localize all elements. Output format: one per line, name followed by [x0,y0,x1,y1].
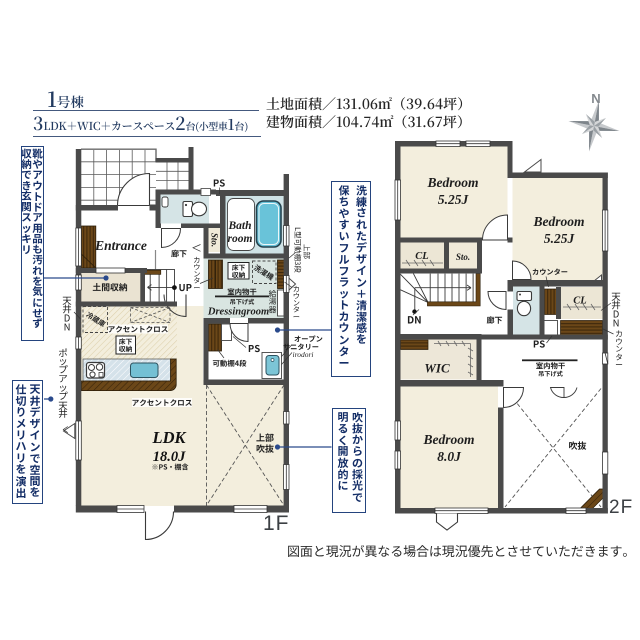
svg-text:Bedroom: Bedroom [532,214,584,229]
svg-text:Entrance: Entrance [94,238,147,253]
svg-text:アクセントクロス: アクセントクロス [108,324,169,335]
svg-text:Bedroom: Bedroom [426,175,478,190]
svg-text:CL: CL [415,251,428,262]
svg-text:PS: PS [213,176,225,190]
svg-text:UP: UP [179,280,192,294]
svg-text:アクセントクロス: アクセントクロス [132,398,193,409]
svg-text:Bath: Bath [227,220,251,232]
svg-text:収納: 収納 [232,270,246,280]
svg-text:Bedroom: Bedroom [422,432,474,447]
svg-text:8.0J: 8.0J [437,449,462,464]
svg-text:WIC: WIC [424,361,450,376]
svg-text:5.25J: 5.25J [544,231,576,246]
svg-text:吹抜: 吹抜 [568,439,586,452]
svg-text:LDK: LDK [152,428,187,447]
svg-text:土間収納: 土間収納 [92,281,127,294]
svg-text:吊下げ式: 吊下げ式 [538,369,564,378]
svg-text:N: N [591,91,600,106]
svg-text:可動棚4段: 可動棚4段 [213,358,248,369]
svg-text:吹抜: 吹抜 [256,442,274,455]
svg-text:Dressingroom: Dressingroom [207,307,269,318]
svg-text:irodori: irodori [293,350,314,359]
svg-text:※PS・棚含: ※PS・棚含 [151,463,188,473]
svg-text:廊下: 廊下 [487,315,503,326]
svg-text:廊下: 廊下 [171,249,187,260]
svg-text:room: room [228,233,253,245]
svg-text:収納: 収納 [119,344,133,354]
svg-text:CL: CL [573,296,586,307]
svg-text:吊下げ式: 吊下げ式 [230,297,256,306]
svg-text:DN: DN [407,312,422,327]
svg-text:5.25J: 5.25J [438,192,470,207]
svg-text:Sto.: Sto. [210,233,220,247]
svg-text:室内物干: 室内物干 [227,287,257,298]
svg-text:PS: PS [248,341,260,355]
svg-text:PS: PS [533,337,545,351]
svg-text:Sto.: Sto. [456,252,470,262]
svg-text:カウンター: カウンター [532,268,568,278]
